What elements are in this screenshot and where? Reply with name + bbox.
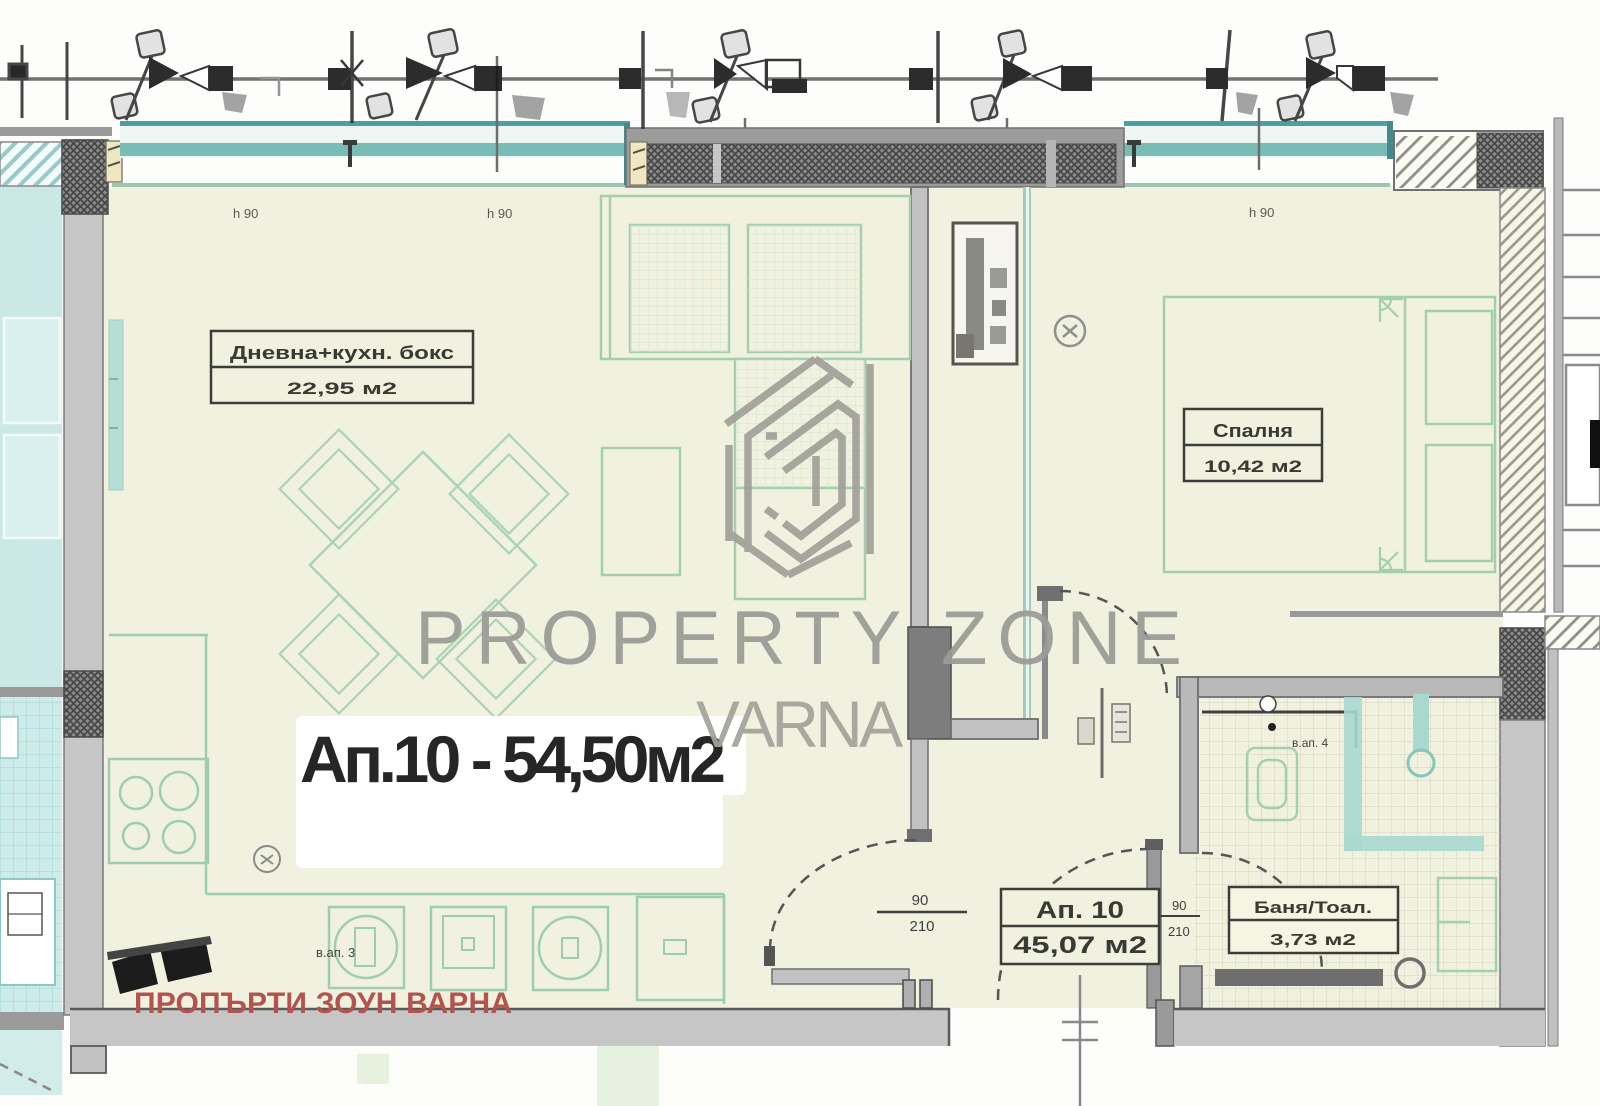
svg-text:Баня/Тоал.: Баня/Тоал. xyxy=(1254,898,1372,917)
svg-text:Ап. 10: Ап. 10 xyxy=(1036,897,1124,924)
svg-text:22,95 м2: 22,95 м2 xyxy=(287,379,397,398)
svg-text:Спалня: Спалня xyxy=(1213,421,1293,441)
svg-text:PROPERTY ZONE: PROPERTY ZONE xyxy=(415,596,1182,681)
svg-text:в.ап. 4: в.ап. 4 xyxy=(1292,736,1329,750)
svg-text:ПРОПЪРТИ ЗОУН ВАРНА: ПРОПЪРТИ ЗОУН ВАРНА xyxy=(134,987,512,1020)
svg-text:h 90: h 90 xyxy=(1249,205,1274,220)
svg-text:45,07 м2: 45,07 м2 xyxy=(1013,932,1147,959)
svg-text:в.ап. 3: в.ап. 3 xyxy=(316,945,355,960)
svg-text:3,73 м2: 3,73 м2 xyxy=(1270,932,1356,949)
svg-text:10,42 м2: 10,42 м2 xyxy=(1204,457,1302,476)
svg-text:h 90: h 90 xyxy=(487,206,512,221)
svg-text:210: 210 xyxy=(909,918,934,935)
svg-text:Ап.10 - 54,50м2: Ап.10 - 54,50м2 xyxy=(300,722,726,796)
svg-text:210: 210 xyxy=(1168,924,1190,939)
svg-text:90: 90 xyxy=(912,892,929,909)
svg-text:90: 90 xyxy=(1172,898,1186,913)
svg-text:VARNA: VARNA xyxy=(696,687,903,761)
svg-text:Дневна+кухн. бокс: Дневна+кухн. бокс xyxy=(230,343,454,363)
svg-text:h 90: h 90 xyxy=(233,206,258,221)
